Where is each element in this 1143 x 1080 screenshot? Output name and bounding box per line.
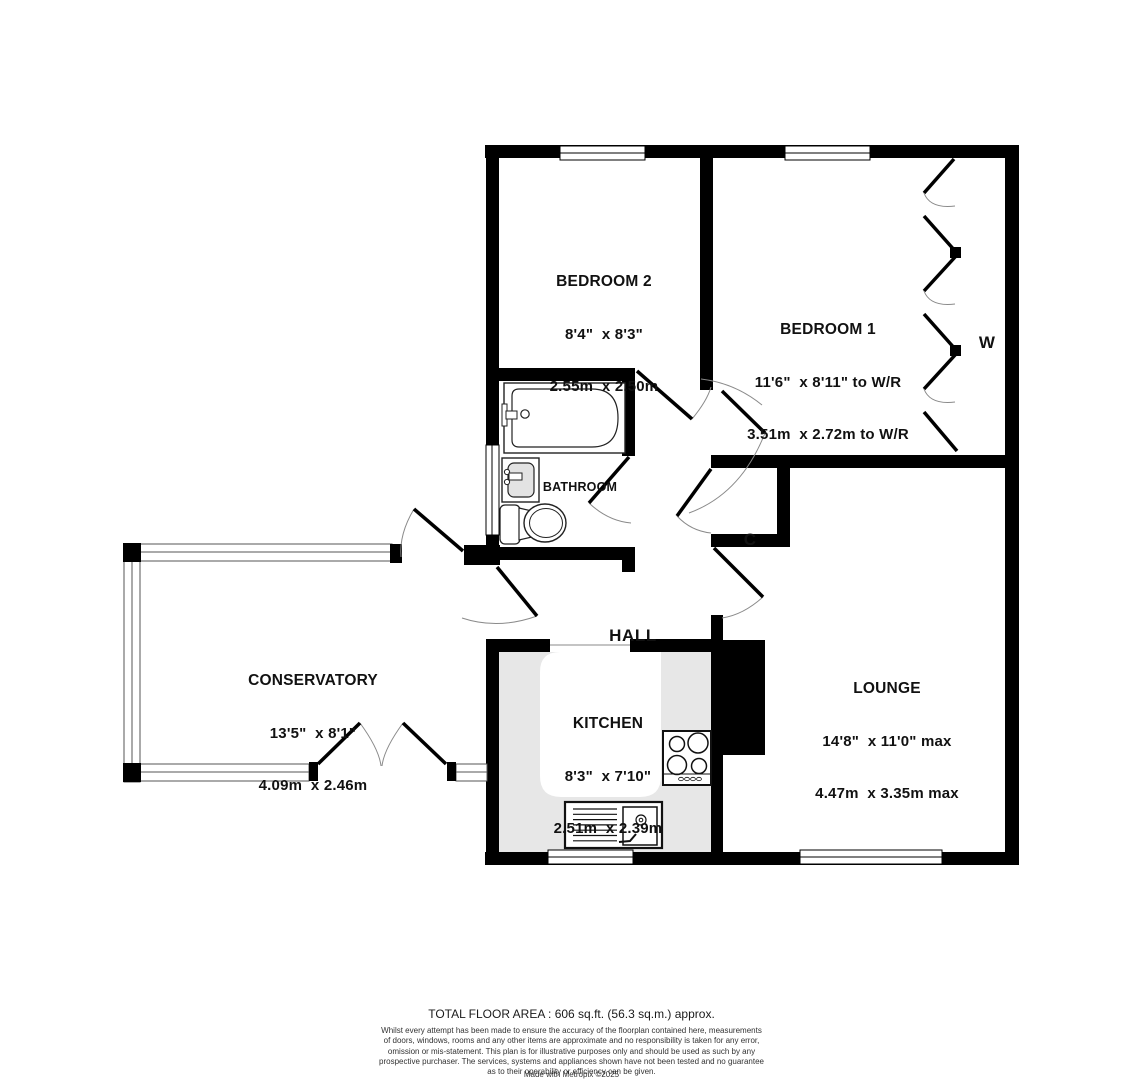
room-label-bedroom2: BEDROOM 2 8'4" x 8'3" 2.55m x 2.50m [550,238,659,431]
room-dims-imperial: 13'5" x 8'1" [248,725,378,743]
room-name: KITCHEN [554,715,663,733]
room-dims-imperial: 8'4" x 8'3" [550,326,659,344]
room-dims-imperial: 8'3" x 7'10" [554,768,663,786]
disclaimer-line: Whilst every attempt has been made to en… [0,1026,1143,1036]
room-label-lounge: LOUNGE 14'8" x 11'0" max 4.47m x 3.35m m… [815,645,959,838]
room-label-conservatory: CONSERVATORY 13'5" x 8'1" 4.09m x 2.46m [248,637,378,830]
disclaimer-line: omission or mis-statement. This plan is … [0,1047,1143,1057]
room-name: LOUNGE [815,680,959,698]
room-name: HALL [609,627,657,645]
room-dims-imperial: 11'6" x 8'11" to W/R [747,374,909,392]
total-floor-area: TOTAL FLOOR AREA : 606 sq.ft. (56.3 sq.m… [0,1007,1143,1021]
room-label-kitchen: KITCHEN 8'3" x 7'10" 2.51m x 2.39m [554,680,663,873]
room-name: CONSERVATORY [248,672,378,690]
room-label-closet: C [740,496,760,584]
room-dims-metric: 2.55m x 2.50m [550,378,659,396]
room-dims-metric: 2.51m x 2.39m [554,820,663,838]
floorplan-page: BEDROOM 2 8'4" x 8'3" 2.55m x 2.50m BEDR… [0,0,1143,1080]
credit-text: Made with Metropix ©2025 [0,1070,1143,1079]
hob-icon [663,731,711,785]
room-name: BEDROOM 1 [747,321,909,339]
disclaimer-line: prospective purchaser. The services, sys… [0,1057,1143,1067]
room-name: W [977,334,997,352]
room-label-hall: HALL [609,592,657,680]
sink-basin-icon [502,458,539,502]
room-name: BEDROOM 2 [550,273,659,291]
room-dims-metric: 4.47m x 3.35m max [815,785,959,803]
room-name: C [740,531,760,549]
room-dims-imperial: 14'8" x 11'0" max [815,733,959,751]
room-name: BATHROOM [543,481,617,494]
room-dims-metric: 4.09m x 2.46m [248,777,378,795]
room-label-wardrobe: W [977,299,997,387]
room-label-bathroom: BATHROOM [543,455,617,520]
wardrobe-bifold [924,159,961,451]
disclaimer-line: of doors, windows, rooms and any other i… [0,1036,1143,1046]
room-label-bedroom1: BEDROOM 1 11'6" x 8'11" to W/R 3.51m x 2… [747,286,909,479]
room-dims-metric: 3.51m x 2.72m to W/R [747,426,909,444]
floorplan-canvas [0,0,1143,1080]
